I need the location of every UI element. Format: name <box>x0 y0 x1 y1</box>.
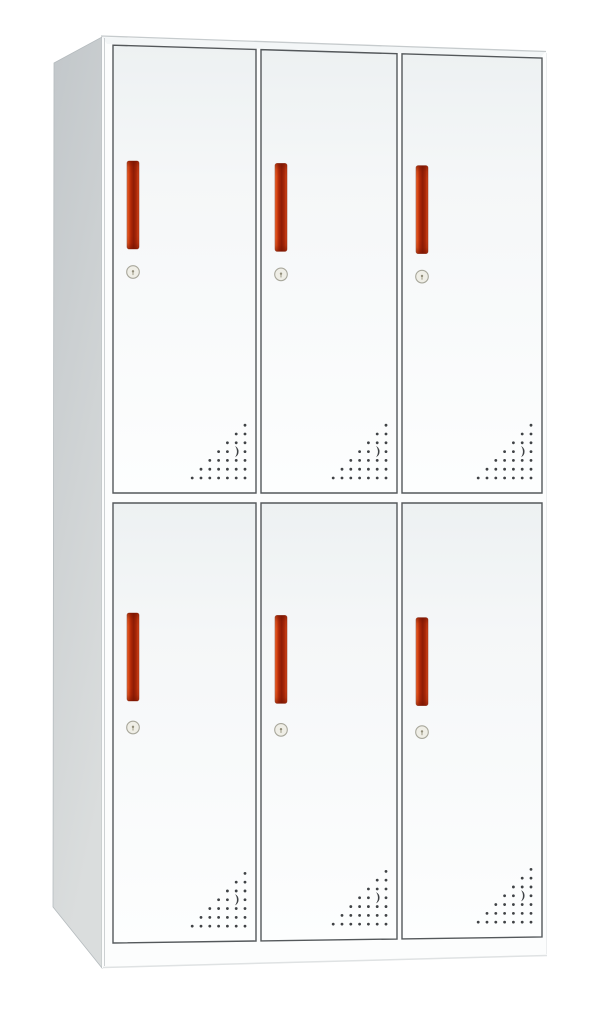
vent-dot <box>349 914 352 917</box>
vent-dot <box>521 441 524 444</box>
vent-dot <box>235 433 238 436</box>
door-panel-bottom-center <box>261 503 397 941</box>
vent-dot <box>341 468 344 471</box>
door-lock-bottom-center <box>275 724 288 737</box>
vent-dot <box>530 433 533 436</box>
vent-dot <box>530 877 533 880</box>
lock-key-slot <box>132 272 133 275</box>
vent-dot <box>512 894 515 897</box>
vent-dot <box>521 886 524 889</box>
vent-dot <box>244 881 247 884</box>
vent-dot <box>332 477 335 480</box>
vent-dot <box>226 459 229 462</box>
vent-dot <box>385 896 388 899</box>
product-photo-locker-cabinet <box>0 0 605 1009</box>
vent-dot <box>376 888 379 891</box>
vent-dot <box>530 477 533 480</box>
vent-dot <box>349 459 352 462</box>
vent-dot <box>503 477 506 480</box>
lock-keyhole <box>280 273 282 275</box>
locker-door-top-left <box>113 45 256 493</box>
vent-dot <box>385 441 388 444</box>
vent-dot <box>208 916 211 919</box>
vent-dot <box>376 879 379 882</box>
vent-dot <box>235 925 238 928</box>
door-lock-top-center <box>275 268 288 281</box>
vent-dot <box>385 888 388 891</box>
vent-dot <box>341 914 344 917</box>
vent-dot <box>208 459 211 462</box>
vent-dot <box>521 903 524 906</box>
vent-dot <box>208 925 211 928</box>
vent-dot <box>332 923 335 926</box>
handle-shading <box>127 613 139 701</box>
vent-dot <box>530 868 533 871</box>
vent-dot <box>494 459 497 462</box>
vent-dot <box>477 477 480 480</box>
vent-dot <box>376 905 379 908</box>
vent-dot <box>367 896 370 899</box>
vent-dot <box>512 886 515 889</box>
vent-dot <box>226 898 229 901</box>
vent-dot <box>512 441 515 444</box>
vent-dot <box>530 441 533 444</box>
handle-shading <box>275 163 287 251</box>
vent-dot <box>358 450 361 453</box>
vent-dot <box>477 921 480 924</box>
vent-dot <box>494 912 497 915</box>
vent-dot <box>521 477 524 480</box>
vent-dot <box>367 905 370 908</box>
vent-dot <box>244 450 247 453</box>
vent-dot <box>530 459 533 462</box>
door-lock-bottom-right <box>416 726 429 739</box>
vent-dot <box>244 916 247 919</box>
locker-door-top-right <box>402 54 542 493</box>
vent-dot <box>486 477 489 480</box>
vent-dot <box>521 468 524 471</box>
lock-keyhole <box>132 726 134 728</box>
vent-dot <box>358 477 361 480</box>
vent-dot <box>208 477 211 480</box>
vent-dot <box>530 894 533 897</box>
vent-dot <box>494 477 497 480</box>
vent-dot <box>217 898 220 901</box>
lock-keyhole <box>421 275 423 277</box>
lock-keyhole <box>421 730 423 732</box>
vent-dot <box>530 886 533 889</box>
vent-dot <box>367 450 370 453</box>
lock-keyhole <box>280 728 282 730</box>
vent-dot <box>244 907 247 910</box>
vent-dot <box>235 916 238 919</box>
door-lock-top-right <box>416 270 429 283</box>
vent-dot <box>486 468 489 471</box>
vent-dot <box>521 433 524 436</box>
lock-key-slot <box>421 277 422 280</box>
door-handle-top-right <box>416 166 428 254</box>
vent-dot <box>191 925 194 928</box>
vent-dot <box>244 477 247 480</box>
vent-dot <box>376 468 379 471</box>
vent-dot <box>385 914 388 917</box>
vent-dot <box>367 459 370 462</box>
vent-dot <box>521 912 524 915</box>
vent-dot <box>521 459 524 462</box>
vent-dot <box>385 870 388 873</box>
vent-dot <box>217 459 220 462</box>
door-handle-top-left <box>127 161 139 249</box>
vent-dot <box>358 896 361 899</box>
vent-dot <box>512 477 515 480</box>
vent-dot <box>226 890 229 893</box>
vent-dot <box>512 921 515 924</box>
vent-dot <box>530 468 533 471</box>
door-lock-top-left <box>127 266 140 279</box>
cabinet-side-panel <box>53 37 102 968</box>
vent-dot <box>244 468 247 471</box>
vent-dot <box>244 433 247 436</box>
vent-dot <box>385 923 388 926</box>
vent-dot <box>200 477 203 480</box>
vent-dot <box>358 923 361 926</box>
lock-key-slot <box>132 728 133 731</box>
vent-dot <box>235 468 238 471</box>
vent-dot <box>367 477 370 480</box>
vent-dot <box>226 907 229 910</box>
handle-shading <box>416 166 428 254</box>
handle-shading <box>127 161 139 249</box>
vent-dot <box>376 477 379 480</box>
vent-dot <box>376 923 379 926</box>
lock-key-slot <box>421 733 422 736</box>
vent-dot <box>349 468 352 471</box>
vent-dot <box>235 881 238 884</box>
lock-key-slot <box>280 275 281 278</box>
vent-dot <box>521 921 524 924</box>
vent-dot <box>341 477 344 480</box>
vent-dot <box>503 921 506 924</box>
vent-dot <box>385 424 388 427</box>
locker-door-top-center <box>261 50 397 493</box>
vent-dot <box>376 441 379 444</box>
vent-dot <box>503 459 506 462</box>
vent-dot <box>385 468 388 471</box>
vent-dot <box>358 468 361 471</box>
vent-dot <box>217 450 220 453</box>
vent-dot <box>385 433 388 436</box>
vent-dot <box>349 477 352 480</box>
locker-cabinet-illustration <box>0 0 605 1009</box>
locker-door-bottom-left <box>113 503 256 943</box>
vent-dot <box>503 912 506 915</box>
vent-dot <box>208 468 211 471</box>
vent-dot <box>341 923 344 926</box>
vent-dot <box>512 468 515 471</box>
door-panel-bottom-right <box>402 503 542 939</box>
handle-shading <box>275 615 287 703</box>
vent-dot <box>200 925 203 928</box>
vent-dot <box>376 914 379 917</box>
door-handle-bottom-right <box>416 618 428 706</box>
vent-dot <box>244 898 247 901</box>
vent-dot <box>235 441 238 444</box>
vent-dot <box>217 477 220 480</box>
vent-dot <box>226 916 229 919</box>
vent-dot <box>217 916 220 919</box>
vent-dot <box>349 923 352 926</box>
vent-dot <box>512 912 515 915</box>
vent-dot <box>226 450 229 453</box>
vent-dot <box>200 468 203 471</box>
vent-dot <box>367 441 370 444</box>
vent-dot <box>494 468 497 471</box>
vent-dot <box>512 903 515 906</box>
vent-dot <box>503 450 506 453</box>
vent-dot <box>358 914 361 917</box>
vent-dot <box>235 459 238 462</box>
vent-dot <box>226 441 229 444</box>
door-lock-bottom-left <box>127 721 140 734</box>
vent-dot <box>503 894 506 897</box>
vent-dot <box>530 450 533 453</box>
vent-dot <box>217 907 220 910</box>
door-handle-top-center <box>275 163 287 251</box>
vent-dot <box>486 912 489 915</box>
vent-dot <box>200 916 203 919</box>
vent-dot <box>367 468 370 471</box>
vent-dot <box>244 925 247 928</box>
vent-dot <box>376 459 379 462</box>
lock-keyhole <box>132 270 134 272</box>
locker-door-bottom-center <box>261 503 397 941</box>
locker-door-bottom-right <box>402 503 542 939</box>
vent-dot <box>486 921 489 924</box>
vent-dot <box>244 872 247 875</box>
vent-dot <box>235 907 238 910</box>
vent-dot <box>191 477 194 480</box>
vent-dot <box>217 468 220 471</box>
vent-dot <box>235 890 238 893</box>
vent-dot <box>494 921 497 924</box>
vent-dot <box>530 424 533 427</box>
vent-dot <box>208 907 211 910</box>
door-handle-bottom-center <box>275 615 287 703</box>
vent-dot <box>521 877 524 880</box>
vent-dot <box>530 903 533 906</box>
vent-dot <box>349 905 352 908</box>
vent-dot <box>367 888 370 891</box>
vent-dot <box>235 477 238 480</box>
vent-dot <box>244 441 247 444</box>
vent-dot <box>385 459 388 462</box>
vent-dot <box>512 459 515 462</box>
vent-dot <box>376 433 379 436</box>
vent-dot <box>494 903 497 906</box>
vent-dot <box>530 912 533 915</box>
vent-dot <box>367 914 370 917</box>
vent-dot <box>503 903 506 906</box>
vent-dot <box>217 925 220 928</box>
vent-dot <box>367 923 370 926</box>
vent-dot <box>244 424 247 427</box>
vent-dot <box>503 468 506 471</box>
vent-dot <box>385 905 388 908</box>
vent-dot <box>226 468 229 471</box>
handle-shading <box>416 618 428 706</box>
vent-dot <box>244 459 247 462</box>
vent-dot <box>226 925 229 928</box>
vent-dot <box>385 879 388 882</box>
vent-dot <box>358 905 361 908</box>
lock-key-slot <box>280 730 281 733</box>
vent-dot <box>385 477 388 480</box>
vent-dot <box>530 921 533 924</box>
vent-dot <box>244 890 247 893</box>
vent-dot <box>226 477 229 480</box>
vent-dot <box>358 459 361 462</box>
door-handle-bottom-left <box>127 613 139 701</box>
vent-dot <box>512 450 515 453</box>
vent-dot <box>385 450 388 453</box>
